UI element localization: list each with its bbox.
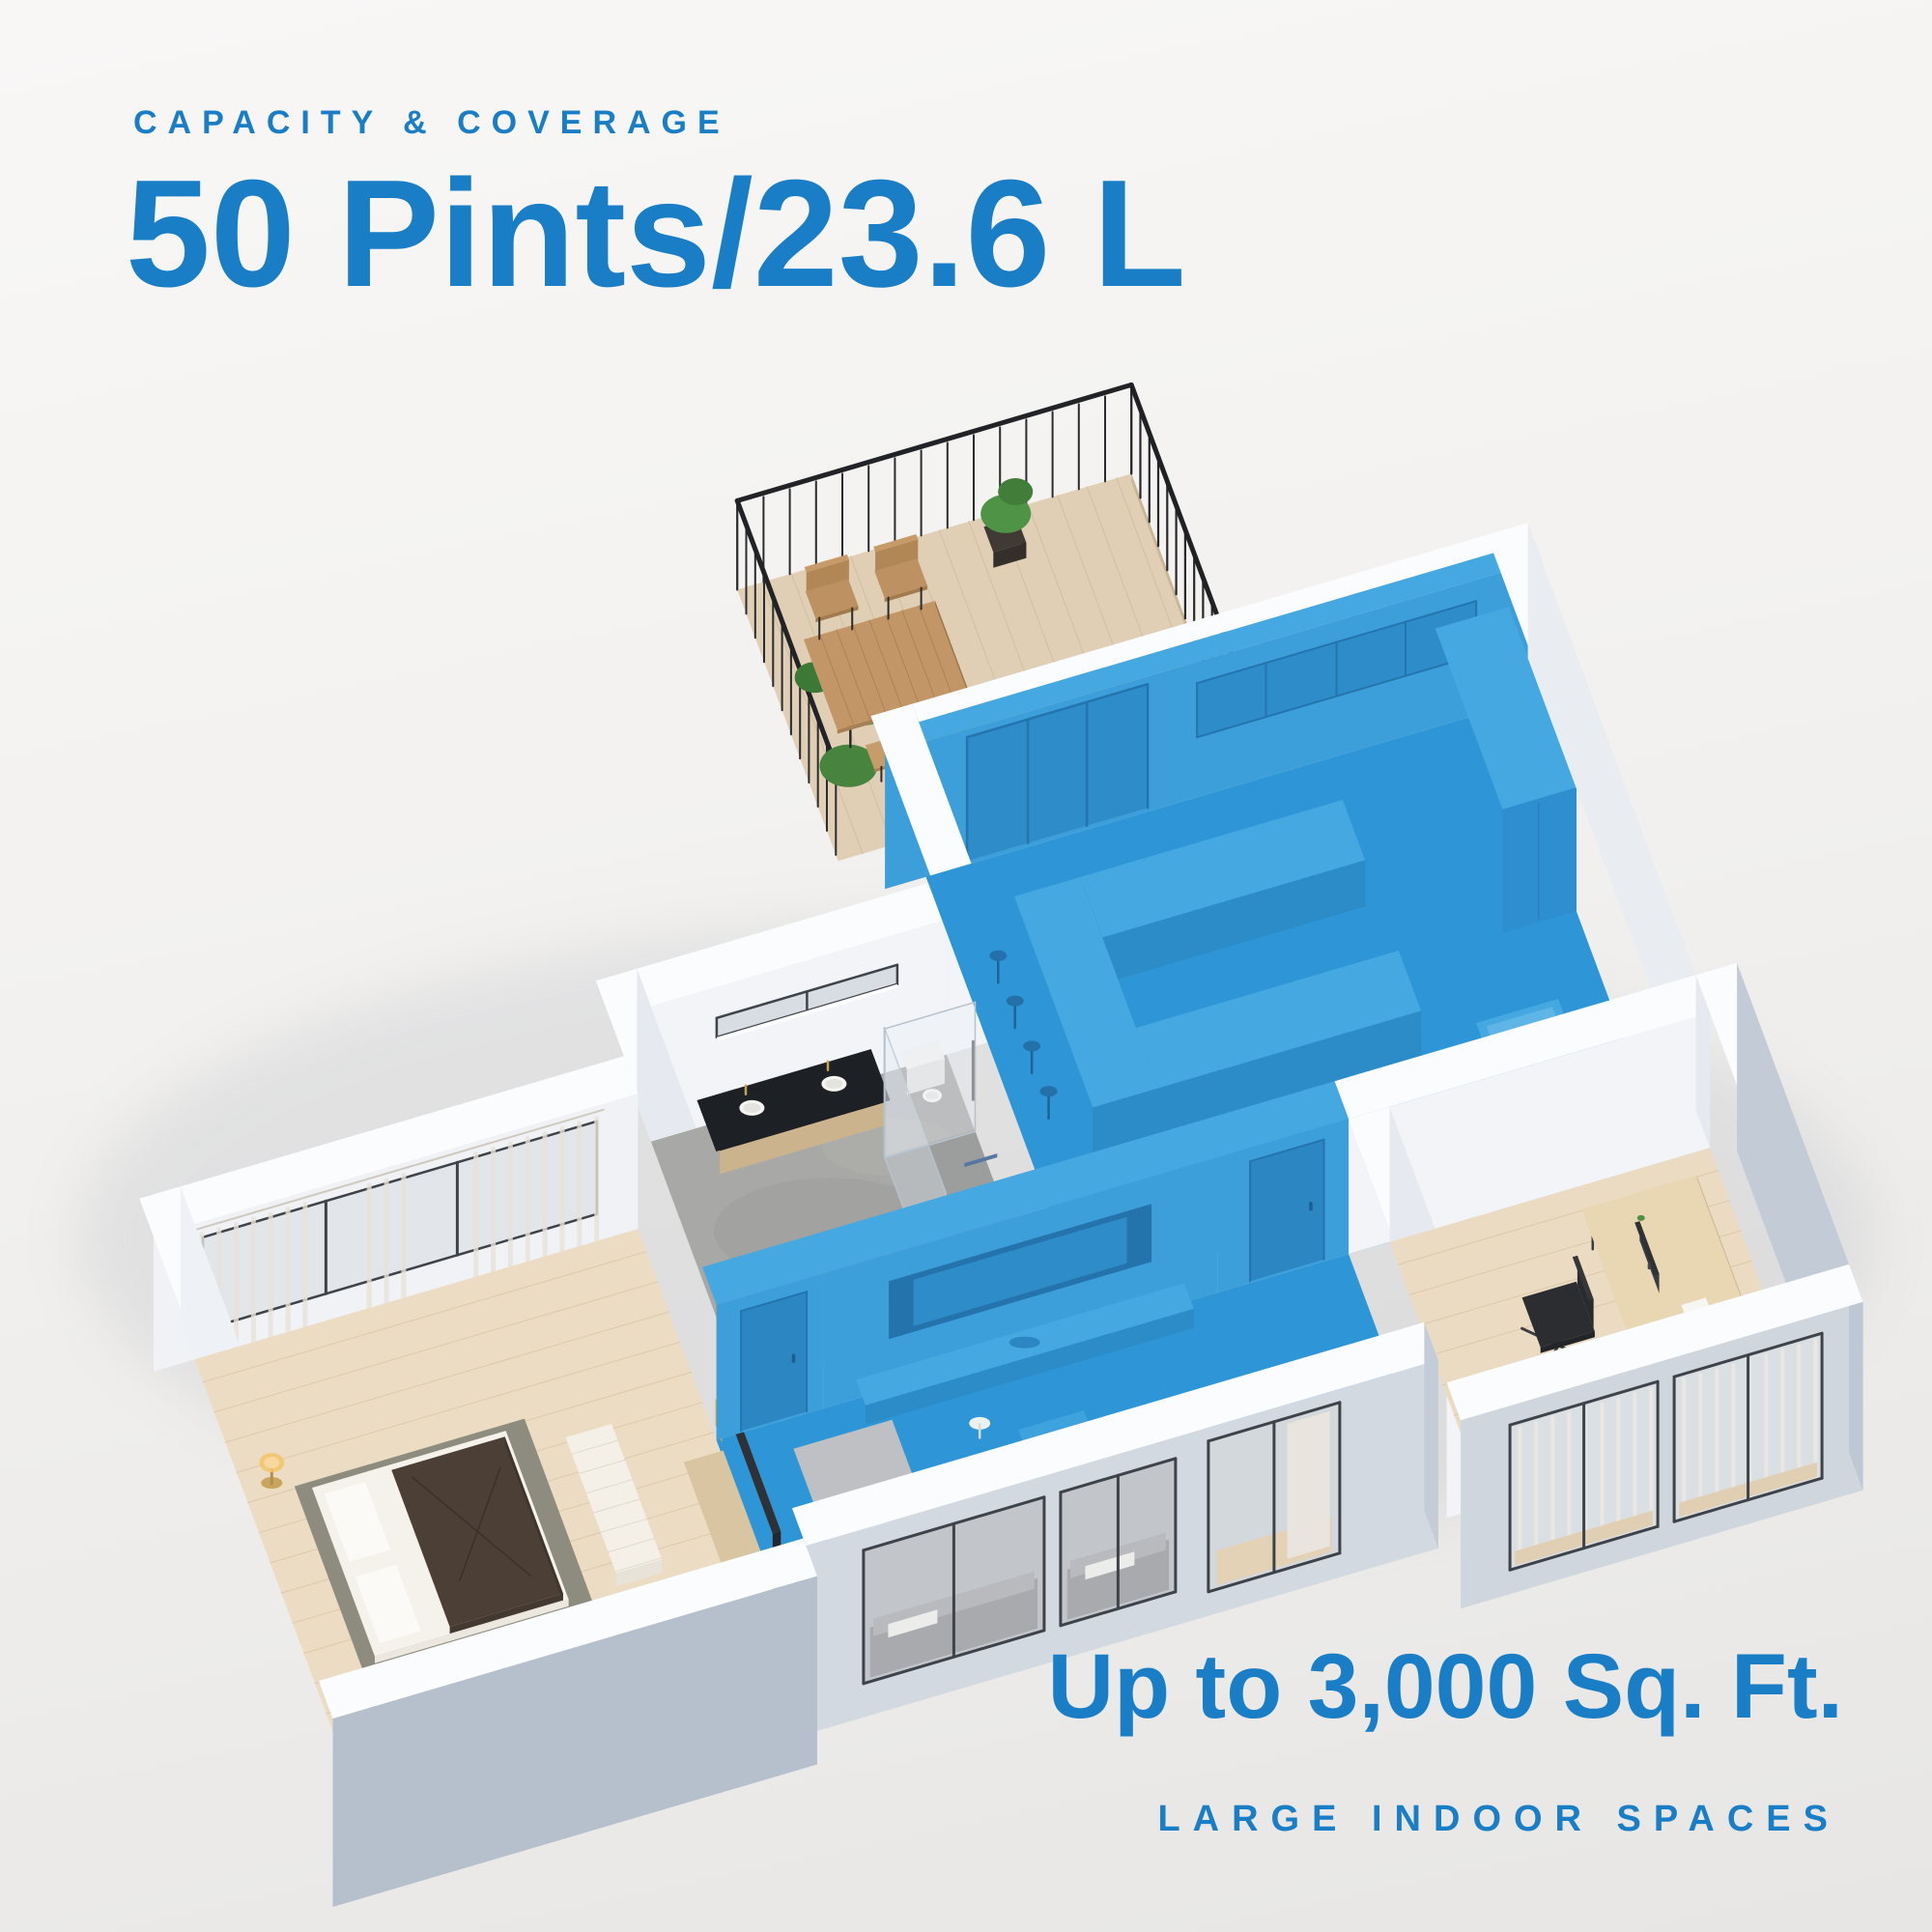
coverage-caption: LARGE INDOOR SPACES xyxy=(1157,1799,1840,1840)
coverage-headline: Up to 3,000 Sq. Ft. xyxy=(1048,1634,1843,1740)
infographic-canvas: CAPACITY & COVERAGE 50 Pints/23.6 L Up t… xyxy=(0,0,1932,1932)
capacity-headline: 50 Pints/23.6 L xyxy=(126,147,1186,322)
eyebrow-label: CAPACITY & COVERAGE xyxy=(133,104,730,142)
